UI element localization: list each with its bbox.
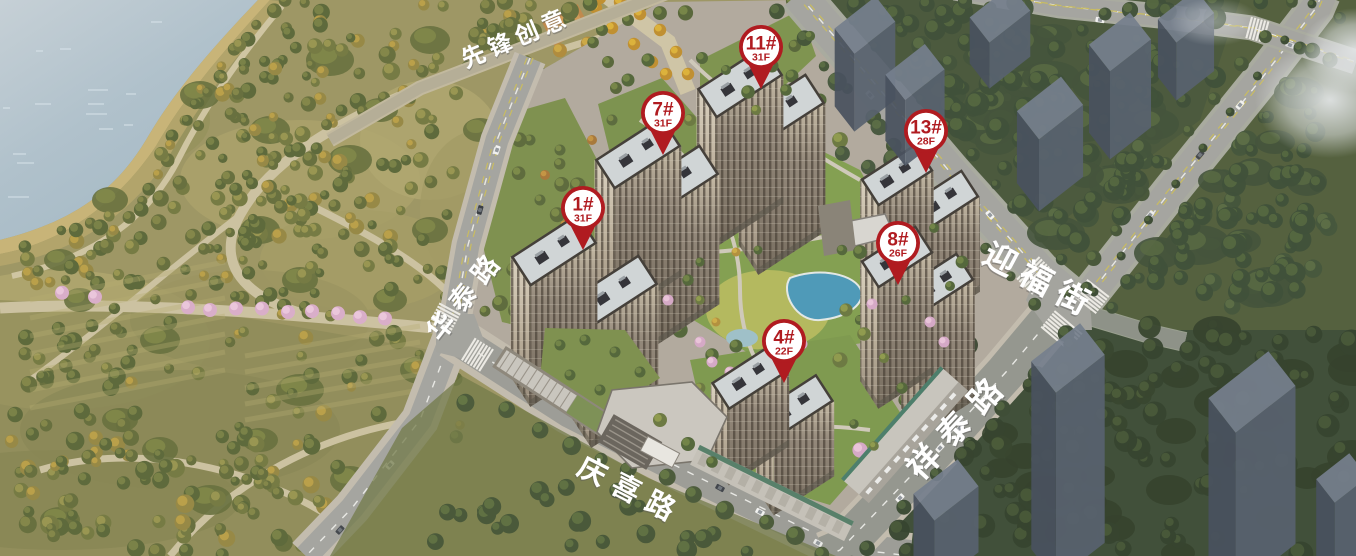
svg-text:31F: 31F [654, 118, 673, 130]
svg-text:31F: 31F [752, 52, 771, 64]
svg-text:31F: 31F [574, 213, 593, 225]
svg-text:26F: 26F [889, 248, 908, 260]
svg-text:28F: 28F [917, 136, 936, 148]
svg-text:22F: 22F [775, 346, 794, 358]
